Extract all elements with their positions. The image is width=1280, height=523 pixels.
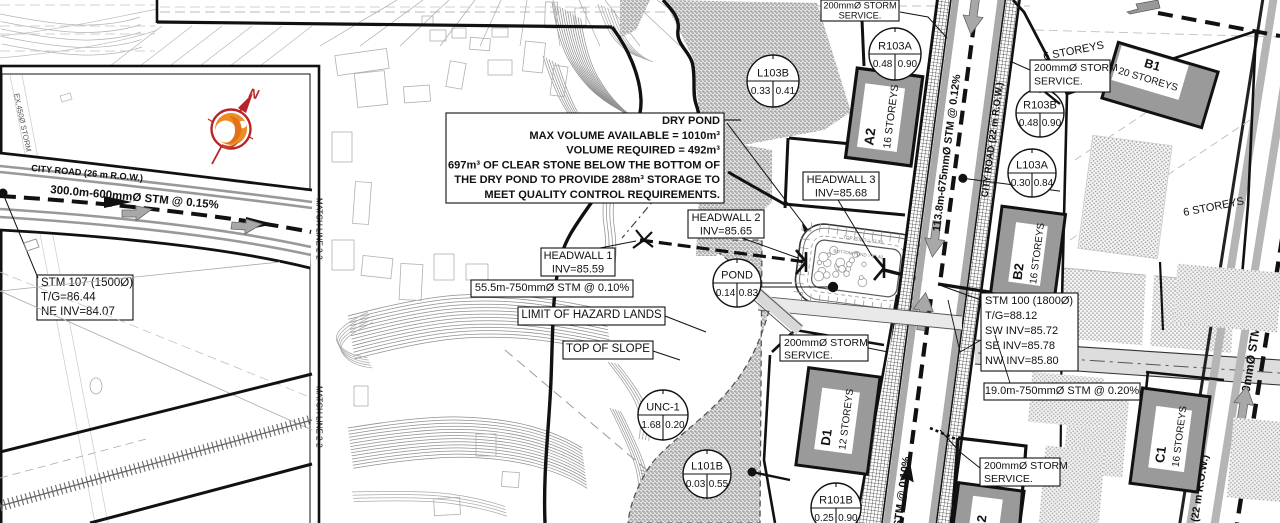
svg-text:A2: A2 (861, 127, 878, 146)
svg-text:0.90: 0.90 (1042, 118, 1062, 129)
svg-text:L103B: L103B (757, 68, 789, 80)
svg-text:0.30: 0.30 (1011, 178, 1031, 189)
svg-text:SERVICE.: SERVICE. (984, 473, 1033, 485)
svg-text:0.03: 0.03 (686, 479, 706, 490)
svg-text:HEADWALL 3: HEADWALL 3 (807, 174, 876, 186)
svg-text:B2: B2 (1010, 262, 1027, 280)
svg-text:55.5m-750mmØ STM @ 0.10%: 55.5m-750mmØ STM @ 0.10% (475, 282, 629, 294)
svg-text:0.84: 0.84 (1034, 178, 1054, 189)
svg-text:0.41: 0.41 (776, 86, 796, 97)
svg-text:SW INV=85.72: SW INV=85.72 (985, 325, 1058, 337)
svg-text:NE INV=84.07: NE INV=84.07 (41, 306, 115, 318)
svg-text:0.20: 0.20 (665, 420, 685, 431)
svg-text:STM 100 (1800Ø): STM 100 (1800Ø) (985, 295, 1073, 307)
svg-text:1.68: 1.68 (641, 420, 661, 431)
svg-text:0.25: 0.25 (814, 513, 834, 523)
svg-text:0.33: 0.33 (751, 86, 771, 97)
svg-text:SE INV=85.78: SE INV=85.78 (985, 340, 1055, 352)
svg-text:INV=85.65: INV=85.65 (700, 226, 752, 238)
svg-text:19.0m-750mmØ STM @ 0.20%: 19.0m-750mmØ STM @ 0.20% (985, 385, 1139, 397)
svg-text:INV=85.68: INV=85.68 (815, 188, 867, 200)
svg-text:INV=85.59: INV=85.59 (552, 264, 604, 276)
svg-text:T/G=88.12: T/G=88.12 (985, 310, 1037, 322)
svg-text:R103B: R103B (1023, 100, 1057, 112)
svg-text:LIMIT OF HAZARD LANDS: LIMIT OF HAZARD LANDS (521, 309, 662, 321)
svg-text:0.14: 0.14 (716, 288, 736, 299)
svg-text:L103A: L103A (1016, 160, 1048, 172)
svg-text:TOP OF SLOPE: TOP OF SLOPE (566, 343, 650, 355)
svg-text:UNC-1: UNC-1 (646, 402, 680, 414)
svg-text:0.83: 0.83 (739, 288, 759, 299)
svg-text:0.55: 0.55 (709, 479, 729, 490)
svg-text:VOLUME REQUIRED = 492m³: VOLUME REQUIRED = 492m³ (566, 145, 720, 157)
svg-text:L101B: L101B (691, 461, 723, 473)
svg-text:C1: C1 (1152, 445, 1169, 463)
svg-text:THE DRY POND TO PROVIDE 288m³: THE DRY POND TO PROVIDE 288m³ STORAGE TO (454, 174, 720, 186)
svg-text:0.90: 0.90 (898, 59, 918, 70)
svg-text:SERVICE.: SERVICE. (1034, 76, 1083, 88)
svg-text:MATCH LINE 2-2: MATCH LINE 2-2 (315, 198, 324, 260)
svg-text:0.48: 0.48 (1019, 118, 1039, 129)
svg-text:SERVICE.: SERVICE. (839, 10, 882, 20)
svg-text:200mmØ STORM: 200mmØ STORM (1034, 62, 1118, 74)
svg-text:NW INV=85.80: NW INV=85.80 (985, 355, 1059, 367)
svg-text:MEET QUALITY CONTROL REQUIREME: MEET QUALITY CONTROL REQUIREMENTS. (484, 189, 720, 201)
svg-text:R101B: R101B (819, 495, 853, 507)
svg-text:697m³ OF CLEAR STONE BELOW THE: 697m³ OF CLEAR STONE BELOW THE BOTTOM OF (448, 159, 720, 171)
svg-text:200mmØ STORM: 200mmØ STORM (784, 337, 868, 349)
svg-text:200mmØ STORM: 200mmØ STORM (823, 1, 896, 11)
svg-text:MATCH LINE 2-2: MATCH LINE 2-2 (315, 386, 324, 448)
svg-text:D1: D1 (818, 428, 835, 446)
svg-text:HEADWALL 2: HEADWALL 2 (692, 212, 761, 224)
svg-text:T/G=86.44: T/G=86.44 (41, 292, 96, 304)
svg-text:0.48: 0.48 (873, 59, 893, 70)
svg-text:MAX VOLUME AVAILABLE = 1010m³: MAX VOLUME AVAILABLE = 1010m³ (529, 130, 720, 142)
svg-text:POND: POND (721, 270, 753, 282)
svg-text:HEADWALL 1: HEADWALL 1 (544, 250, 613, 262)
svg-text:R103A: R103A (878, 41, 912, 53)
svg-text:0.90: 0.90 (838, 513, 858, 523)
svg-text:SERVICE.: SERVICE. (784, 350, 833, 362)
svg-text:200mmØ STORM: 200mmØ STORM (984, 460, 1068, 472)
svg-text:DRY POND: DRY POND (662, 115, 720, 127)
